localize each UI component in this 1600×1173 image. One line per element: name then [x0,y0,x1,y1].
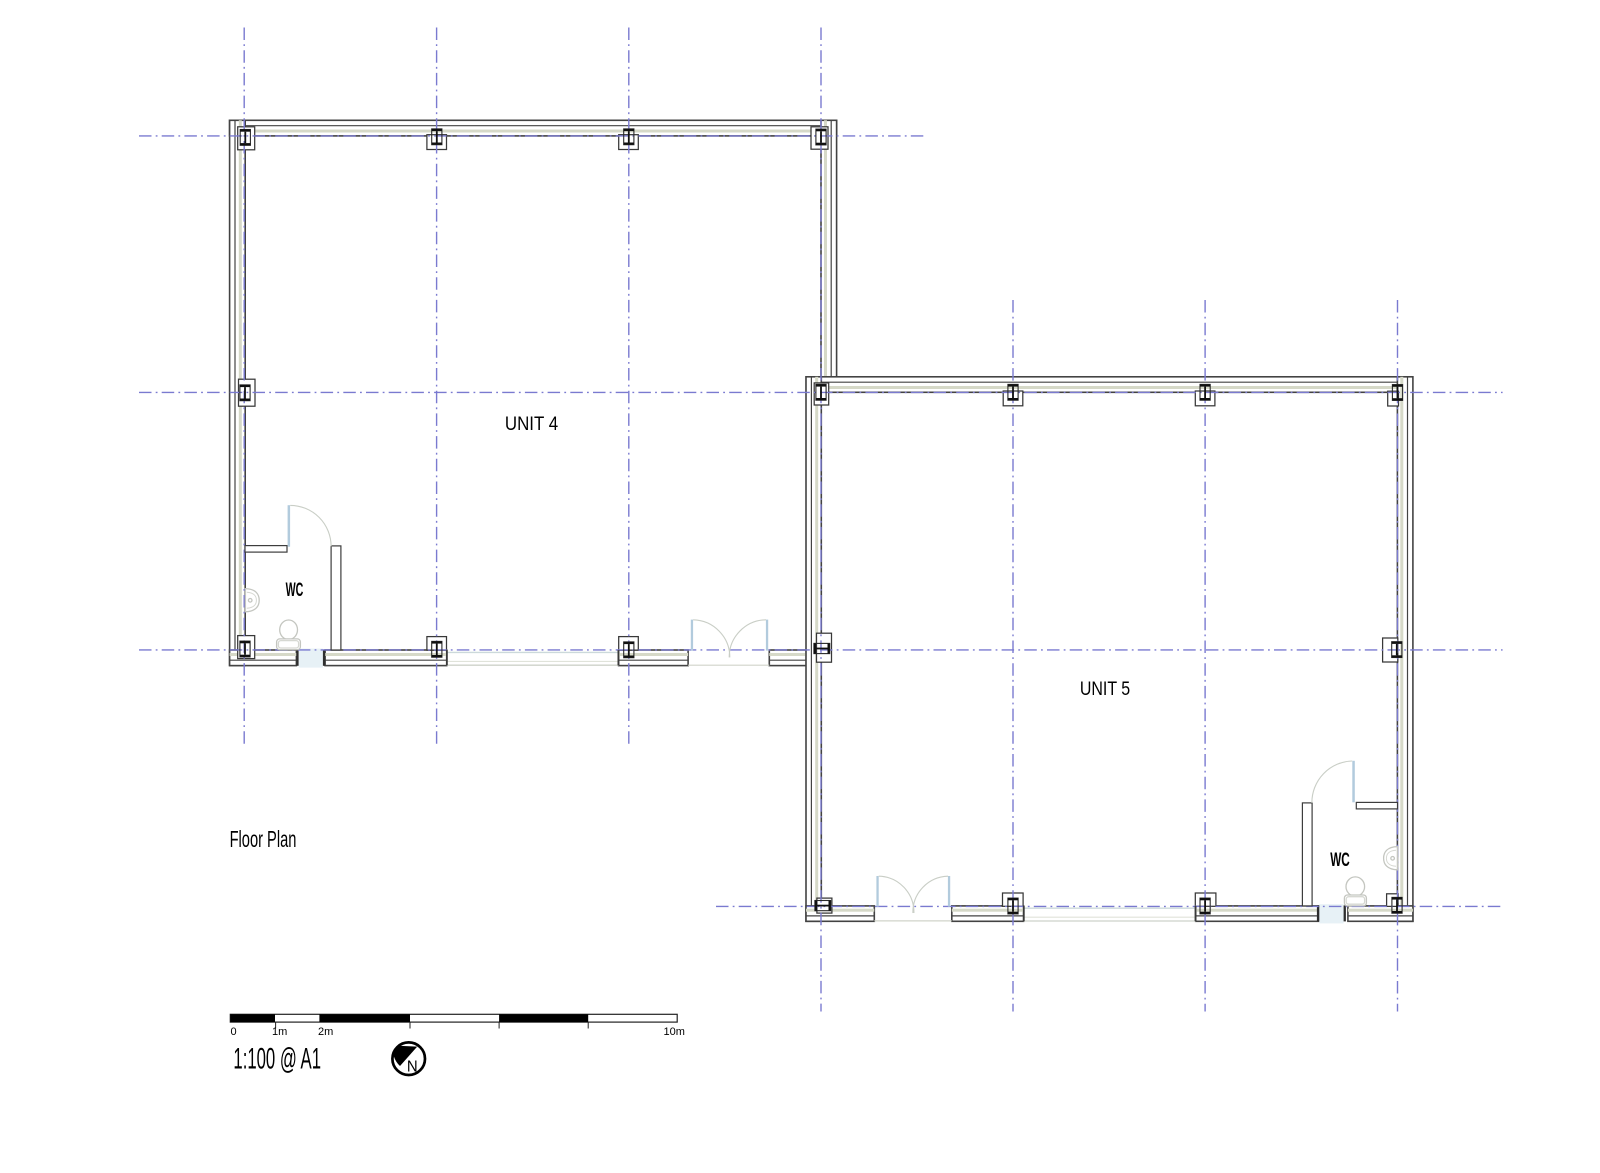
svg-text:WC: WC [1330,850,1350,871]
svg-text:UNIT 5: UNIT 5 [1080,678,1130,700]
svg-text:0: 0 [231,1026,237,1038]
svg-text:UNIT 4: UNIT 4 [505,413,558,435]
svg-text:1:100 @ A1: 1:100 @ A1 [233,1042,321,1075]
svg-text:10m: 10m [663,1026,684,1038]
svg-text:2m: 2m [318,1026,333,1038]
svg-text:Floor Plan: Floor Plan [230,826,297,852]
svg-text:N: N [407,1058,418,1075]
svg-text:1m: 1m [272,1026,287,1038]
svg-text:WC: WC [286,580,304,601]
